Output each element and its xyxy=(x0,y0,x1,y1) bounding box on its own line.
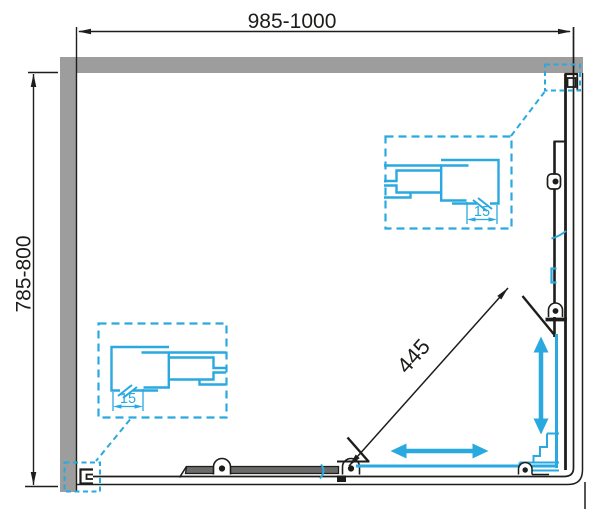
arrow-down xyxy=(31,472,37,485)
detail-box-left xyxy=(99,324,227,418)
detail-left-dimension-label: 15 xyxy=(120,391,136,407)
right-sliding-door xyxy=(523,142,568,339)
arrow-left xyxy=(78,29,91,35)
detail-box-right xyxy=(386,137,512,229)
arrow-up xyxy=(31,74,37,87)
leader-right xyxy=(511,92,545,136)
corner-roller-dot xyxy=(523,467,528,472)
wall-profiles xyxy=(60,27,583,492)
door-roller-2-dot xyxy=(348,465,354,471)
enclosure-plan-drawing: 985-1000 785-800 xyxy=(0,0,600,509)
door-guide-block xyxy=(337,476,346,483)
door-top-hook xyxy=(555,142,565,151)
arrow-right xyxy=(558,29,571,35)
detail-callouts xyxy=(65,65,581,492)
bottom-sliding-door xyxy=(180,438,370,483)
closed-door-glass-lines xyxy=(320,231,566,479)
width-dimension: 985-1000 xyxy=(78,10,571,34)
detail-right-dimension-label: 15 xyxy=(474,204,490,220)
diagonal-dimension-label: 445 xyxy=(392,334,435,378)
right-side-panel xyxy=(77,27,585,509)
corner-magnet-profiles xyxy=(519,434,560,475)
depth-dimension-label: 785-800 xyxy=(13,235,36,312)
door-roller-1-dot xyxy=(219,465,225,471)
horizontal-arrow-head-right xyxy=(473,444,489,459)
left-wall-profile xyxy=(60,57,77,492)
door-bar xyxy=(186,467,339,474)
vertical-arrow-head-bottom xyxy=(534,419,549,435)
inner-edge-line xyxy=(93,27,574,477)
bottom-left-corner-profile xyxy=(81,470,94,484)
vertical-arrow-head-top xyxy=(534,337,549,353)
outer-edge-line xyxy=(77,73,583,485)
horizontal-arrow-head-left xyxy=(391,444,407,459)
leader-left xyxy=(96,420,130,462)
drawing-canvas: 985-1000 785-800 xyxy=(0,0,600,509)
door-roller-dot xyxy=(553,308,559,314)
depth-dimension: 785-800 xyxy=(13,73,59,487)
diagonal-dimension: 445 xyxy=(349,288,508,466)
door-handle-dot xyxy=(553,179,559,185)
width-dimension-label: 985-1000 xyxy=(248,10,337,33)
wall-profile-detail-left: 15 xyxy=(112,347,227,411)
top-wall-profile xyxy=(60,57,583,73)
